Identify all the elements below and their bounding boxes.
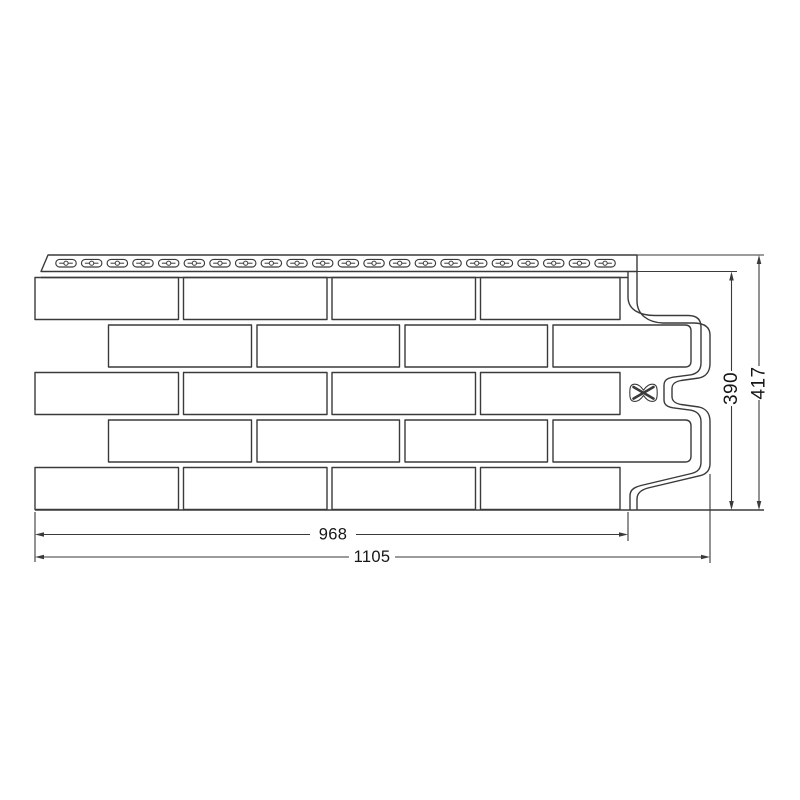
drawing-background bbox=[0, 0, 800, 800]
dim-label-width-inner: 968 bbox=[319, 526, 347, 544]
panel-dimension-drawing: 968 1105 390 417 bbox=[0, 0, 800, 800]
dim-label-height-inner: 390 bbox=[721, 372, 742, 405]
dim-label-width-outer: 1105 bbox=[354, 548, 391, 566]
drawing-canvas: 968 1105 390 417 bbox=[0, 0, 800, 800]
dim-label-height-outer: 417 bbox=[749, 367, 770, 400]
